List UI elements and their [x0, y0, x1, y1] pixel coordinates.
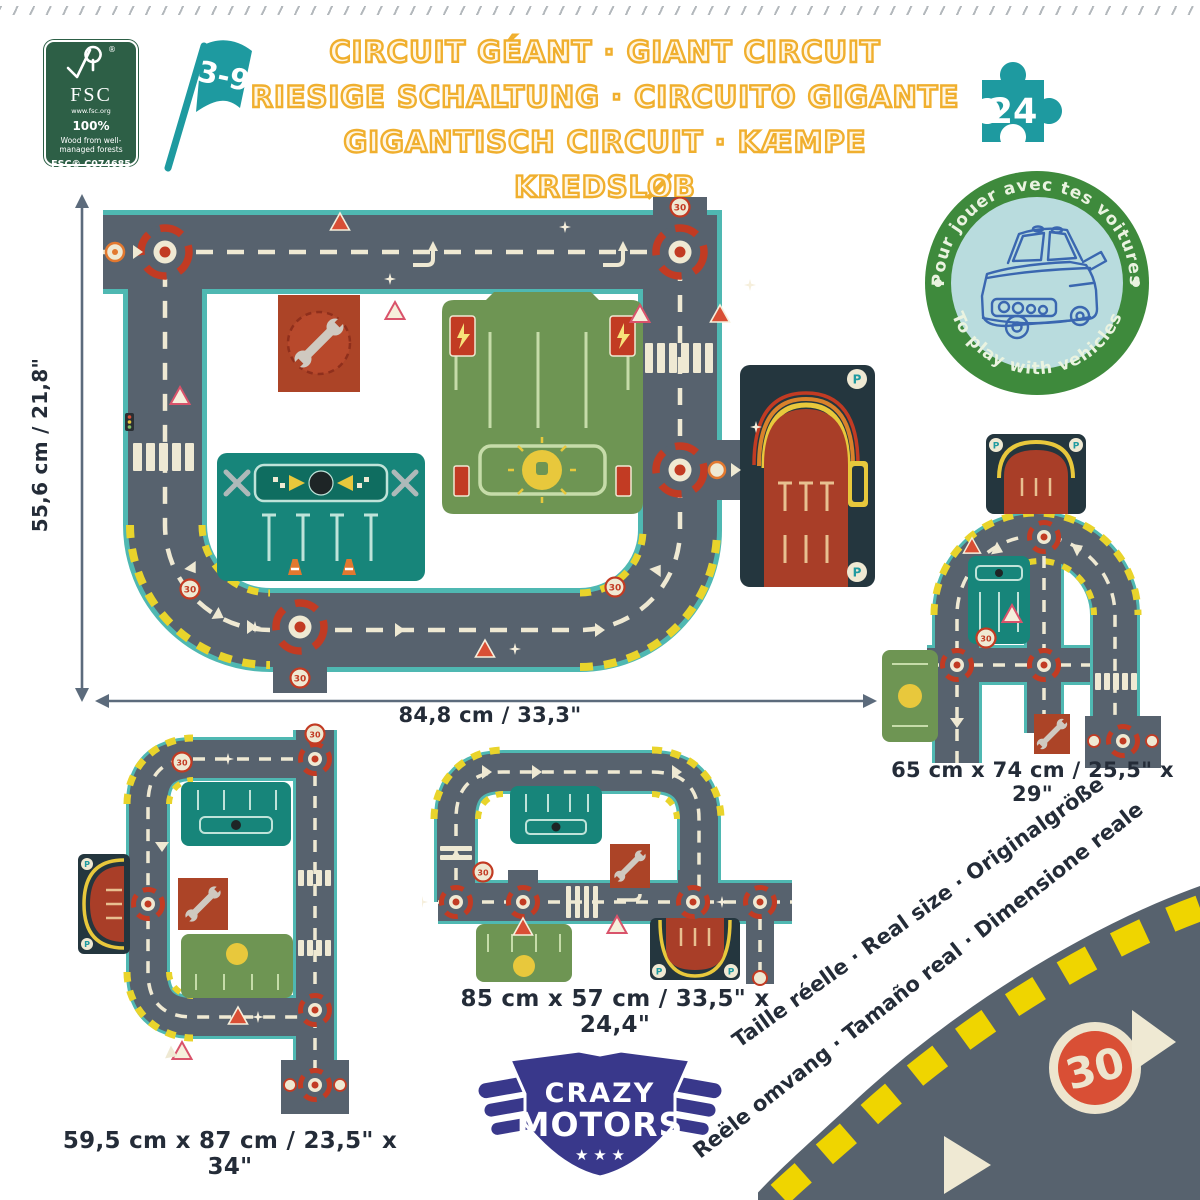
logo-stars: ★ ★ ★: [575, 1146, 625, 1164]
perforation-edge: [0, 6, 1200, 15]
layout-right-diagram: P P 30: [882, 428, 1182, 773]
title-line-2: RIESIGE SCHALTUNG · CIRCUITO GIGANTE: [250, 75, 960, 120]
svg-text:30: 30: [184, 586, 197, 596]
packaging-back-panel: ® FSC www.fsc.org 100% Wood from well- m…: [0, 0, 1200, 1200]
fsc-url: www.fsc.org: [46, 107, 136, 115]
layout-bottom-middle-diagram: P P 30: [422, 740, 812, 1002]
svg-text:P: P: [656, 968, 663, 978]
wrench-tile: [278, 295, 360, 392]
main-roads: [103, 197, 745, 693]
parking-garage-mini: P P: [986, 434, 1086, 514]
logo-line-2: MOTORS: [517, 1105, 684, 1144]
layout-bottom-left-diagram: P P 30 30: [78, 722, 408, 1130]
svg-text:P: P: [84, 860, 90, 869]
svg-text:30: 30: [309, 731, 321, 740]
play-with-vehicles-badge: Pour jouer avec tes voitures To play wit…: [920, 166, 1154, 400]
svg-text:P: P: [1073, 442, 1080, 452]
svg-text:P: P: [84, 940, 90, 949]
fsc-percent: 100%: [46, 119, 136, 133]
svg-text:30: 30: [980, 635, 992, 644]
main-circuit-diagram: P P 30 30 30 30: [95, 197, 875, 695]
parking-sign: P: [853, 566, 862, 580]
parking-sign: P: [853, 373, 862, 387]
svg-text:P: P: [993, 442, 1000, 452]
fsc-brand: FSC: [46, 84, 136, 107]
parking-garage-mini: P P: [650, 918, 740, 980]
fsc-tree-icon: ®: [46, 42, 136, 82]
svg-text:30: 30: [477, 869, 489, 878]
pieces-count-label: 24: [989, 92, 1038, 132]
parking-garage-mini: P P: [78, 854, 130, 954]
repair-garage-building: [217, 453, 425, 581]
height-dimension-arrow: [62, 192, 96, 704]
svg-text:P: P: [728, 968, 735, 978]
svg-text:30: 30: [294, 675, 307, 685]
title-line-1: CIRCUIT GÉANT · GIANT CIRCUIT: [250, 30, 960, 75]
crazy-motors-logo: CRAZY MOTORS ★ ★ ★: [478, 1032, 722, 1192]
age-flag: 3-9: [146, 34, 260, 176]
fsc-reg-mark: ®: [108, 45, 116, 54]
main-height-label: 55,6 cm / 21,8": [28, 343, 52, 547]
product-title: CIRCUIT GÉANT · GIANT CIRCUIT RIESIGE SC…: [250, 30, 960, 210]
fsc-label: ® FSC www.fsc.org 100% Wood from well- m…: [44, 40, 138, 166]
svg-text:30: 30: [176, 759, 188, 768]
puzzle-piece-count: 24: [952, 42, 1074, 160]
bl-buildings: [178, 782, 293, 998]
charging-station-building: [442, 292, 643, 514]
svg-text:30: 30: [609, 584, 622, 594]
layout-bottom-left-label: 59,5 cm x 87 cm / 23,5" x 34": [55, 1128, 405, 1180]
svg-text:30: 30: [674, 204, 687, 214]
parking-garage-building: P P: [740, 365, 875, 587]
fsc-license: FSC® C074685: [46, 159, 136, 170]
fsc-description: Wood from well- managed forests: [46, 136, 136, 154]
